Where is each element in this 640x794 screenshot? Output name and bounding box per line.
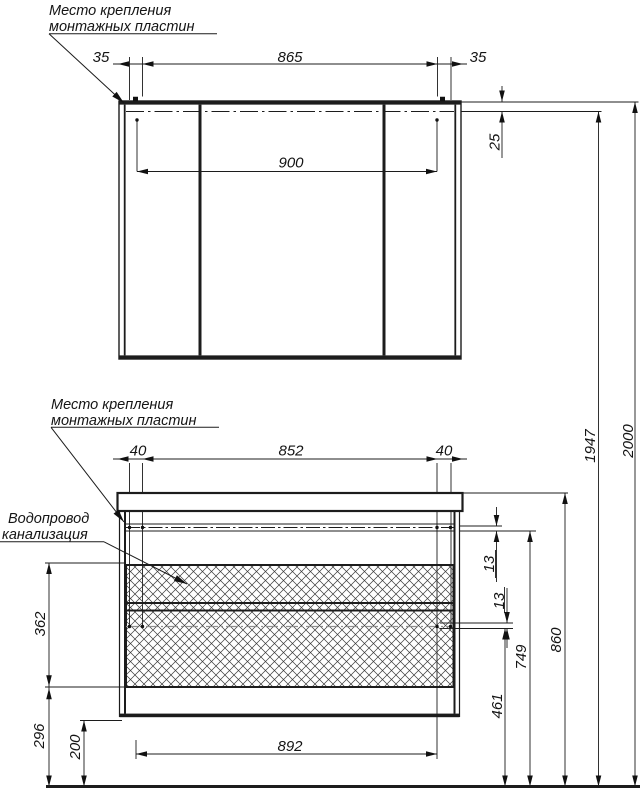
mirror-door-dividers: [200, 105, 384, 356]
mirror-ref-dot-left: [135, 118, 138, 121]
mounting-dot: [128, 526, 131, 529]
dim-plate-inset-top: 13: [481, 555, 498, 572]
installation-drawing: 35 865 35 900 25 Место крепления монтажн…: [0, 0, 640, 794]
dim-vanity-offset-left: 40: [130, 443, 147, 460]
mirror-mounting-label-line1: Место крепления: [49, 3, 171, 19]
dim-mirror-width: 900: [278, 155, 304, 172]
dim-plate-row2-height: 461: [489, 693, 506, 718]
plumbing-label-line2: канализация: [2, 527, 88, 543]
mirror-cabinet-outline: [119, 101, 461, 359]
dim-mirror-plate-span: 865: [277, 49, 303, 66]
dim-mirror-offset-right: 35: [470, 49, 487, 66]
vanity-mounting-label-line1: Место крепления: [51, 397, 173, 413]
dim-plate-inset-mid: 13: [491, 592, 508, 609]
mirror-mounting-label-line2: монтажных пластин: [49, 19, 194, 35]
dim-mirror-plate-drop: 25: [487, 133, 504, 151]
mirror-dimension-arrows: [118, 61, 505, 174]
dim-vanity-plate-span: 852: [278, 443, 304, 460]
vanity-bottom-edge: [120, 714, 460, 718]
dim-floor-clearance: 200: [67, 734, 84, 761]
overall-dimension-arrows: [502, 102, 638, 787]
mounting-dot: [141, 625, 144, 628]
drawer-front-top: [126, 565, 454, 603]
vanity-cabinet-view: 40 852 40 13 13 362 296 200 892 Место кр…: [0, 397, 568, 787]
mounting-dot: [449, 625, 452, 628]
mounting-dot: [435, 625, 438, 628]
installation-drawing-page: 35 865 35 900 25 Место крепления монтажн…: [0, 0, 640, 794]
dim-countertop-height: 860: [548, 627, 565, 653]
mounting-dot: [435, 526, 438, 529]
overall-dimension-lines: [505, 102, 635, 787]
drawer-front-bottom: [126, 611, 454, 688]
mounting-dot: [141, 526, 144, 529]
dim-total-height: 2000: [620, 424, 637, 459]
mirror-cabinet-view: 35 865 35 900 25 Место крепления монтажн…: [49, 3, 639, 359]
plumbing-label-line1: Водопровод: [8, 511, 89, 527]
mirror-cabinet-side-panels: [125, 105, 456, 356]
dim-vanity-offset-right: 40: [436, 443, 453, 460]
mirror-ref-dot-right: [435, 118, 438, 121]
vanity-countertop: [118, 493, 463, 511]
mirror-thin-lines: [113, 57, 639, 172]
mirror-cabinet-top-bottom-edges: [119, 101, 461, 359]
dim-body-height: 749: [513, 644, 530, 670]
dim-mirror-plate-height: 1947: [582, 429, 599, 463]
dim-vanity-width-bottom: 892: [277, 738, 303, 755]
dim-lower-front-height: 296: [31, 723, 48, 750]
dim-drawer-front-height: 362: [32, 611, 49, 637]
drawer-rail-strip: [126, 603, 454, 611]
dim-mirror-offset-left: 35: [93, 49, 110, 66]
mirror-label-underline-and-leader: [49, 34, 217, 103]
mounting-dot: [128, 625, 131, 628]
vanity-mounting-label-line2: монтажных пластин: [51, 413, 196, 429]
mounting-dot: [449, 526, 452, 529]
